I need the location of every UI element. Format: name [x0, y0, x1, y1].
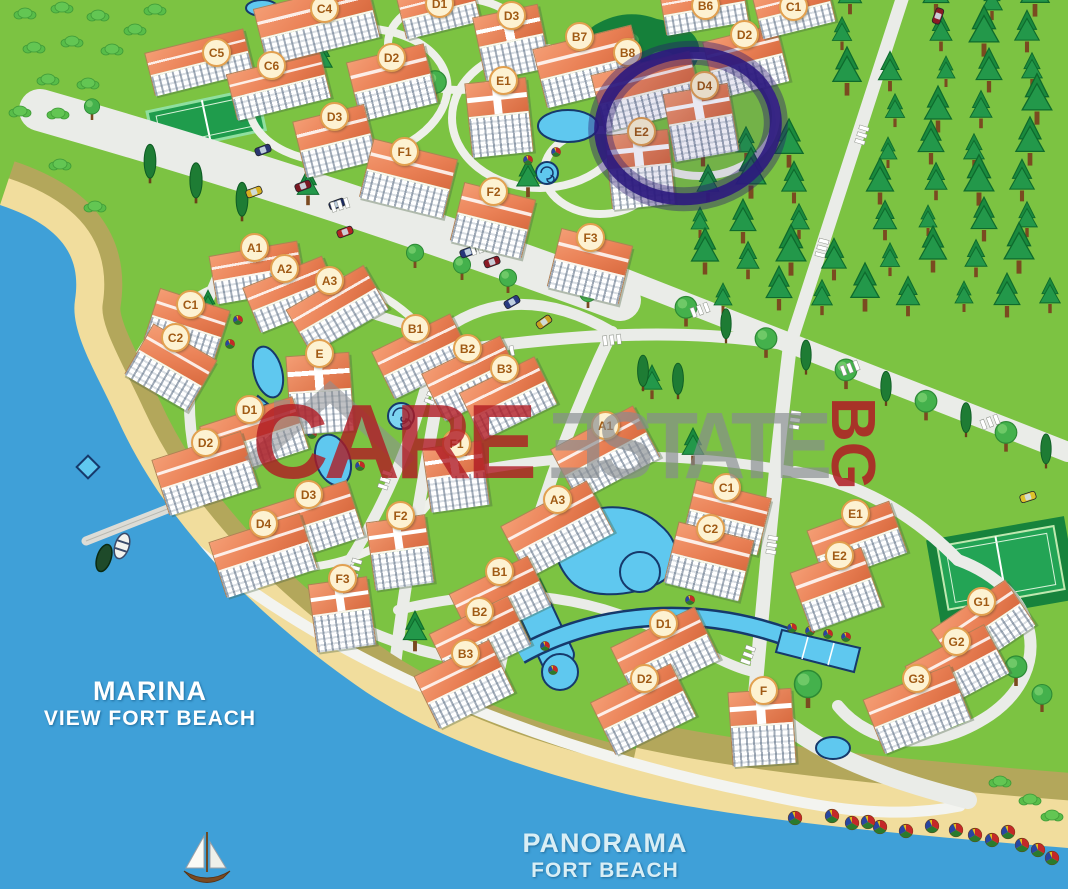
- badge-marina-view-e[interactable]: E: [305, 339, 334, 368]
- badge-panorama-f[interactable]: F: [749, 676, 778, 705]
- badge-upper-resort-d2[interactable]: D2: [377, 43, 406, 72]
- xwalk: [603, 334, 622, 346]
- badge-panorama-b2[interactable]: B2: [465, 597, 494, 626]
- badge-marina-view-f2[interactable]: F2: [386, 501, 415, 530]
- badge-marina-view-a3[interactable]: A3: [315, 266, 344, 295]
- umb: [355, 461, 364, 470]
- umb: [685, 595, 694, 604]
- badge-upper-resort-e2[interactable]: E2: [627, 117, 656, 146]
- umb: [841, 632, 850, 641]
- badge-upper-resort-d2[interactable]: D2: [730, 20, 759, 49]
- umb: [925, 819, 938, 832]
- badge-panorama-a1[interactable]: A1: [591, 411, 620, 440]
- badge-upper-resort-f3[interactable]: F3: [576, 223, 605, 252]
- badge-marina-view-b1[interactable]: B1: [401, 314, 430, 343]
- umb: [551, 147, 560, 156]
- xwalk: [766, 535, 778, 554]
- badge-upper-resort-d3[interactable]: D3: [497, 1, 526, 30]
- umb: [787, 623, 796, 632]
- umb: [1031, 843, 1044, 856]
- badge-upper-resort-b7[interactable]: B7: [565, 22, 594, 51]
- umb: [968, 828, 981, 841]
- badge-marina-view-d3[interactable]: D3: [294, 480, 323, 509]
- badge-marina-view-a2[interactable]: A2: [270, 254, 299, 283]
- badge-upper-resort-f2[interactable]: F2: [479, 177, 508, 206]
- badge-panorama-g3[interactable]: G3: [902, 664, 931, 693]
- umb: [683, 551, 692, 560]
- badge-upper-resort-f1[interactable]: F1: [390, 137, 419, 166]
- badge-upper-resort-c5[interactable]: C5: [202, 38, 231, 67]
- umb: [540, 641, 549, 650]
- umb: [873, 820, 886, 833]
- badge-panorama-d1[interactable]: D1: [649, 609, 678, 638]
- umb: [1001, 825, 1014, 838]
- umb: [523, 155, 532, 164]
- badge-marina-view-b3[interactable]: B3: [490, 354, 519, 383]
- badge-panorama-g1[interactable]: G1: [967, 587, 996, 616]
- badge-panorama-b1[interactable]: B1: [485, 557, 514, 586]
- map-base: [0, 0, 1068, 889]
- xwalk: [789, 410, 801, 429]
- badge-panorama-e2[interactable]: E2: [825, 541, 854, 570]
- badge-panorama-d2[interactable]: D2: [630, 664, 659, 693]
- badge-marina-view-f1[interactable]: F1: [442, 429, 471, 458]
- badge-marina-view-c1[interactable]: C1: [176, 290, 205, 319]
- badge-panorama-c2[interactable]: C2: [696, 514, 725, 543]
- badge-marina-view-c2[interactable]: C2: [161, 323, 190, 352]
- umb: [307, 429, 316, 438]
- badge-upper-resort-e1[interactable]: E1: [489, 66, 518, 95]
- umb: [861, 815, 874, 828]
- umb: [845, 816, 858, 829]
- badge-panorama-g2[interactable]: G2: [942, 627, 971, 656]
- resort-map: C5C6C4D1D2D3D3F1B7B8E1E2D2D4B6C1F2F3A1A2…: [0, 0, 1068, 889]
- umb: [690, 573, 699, 582]
- badge-marina-view-a1[interactable]: A1: [240, 233, 269, 262]
- umb: [788, 811, 801, 824]
- badge-marina-view-d4[interactable]: D4: [249, 509, 278, 538]
- badge-upper-resort-c6[interactable]: C6: [257, 51, 286, 80]
- badge-panorama-c1[interactable]: C1: [712, 473, 741, 502]
- umb: [1015, 838, 1028, 851]
- badge-marina-view-f3[interactable]: F3: [328, 564, 357, 593]
- umb: [949, 823, 962, 836]
- umb: [233, 315, 242, 324]
- umb: [295, 387, 304, 396]
- umb: [985, 833, 998, 846]
- badge-upper-resort-d4[interactable]: D4: [690, 71, 719, 100]
- umb: [679, 617, 688, 626]
- umb: [225, 339, 234, 348]
- umb: [287, 409, 296, 418]
- umb: [805, 626, 814, 635]
- umb: [548, 665, 557, 674]
- badge-marina-view-b2[interactable]: B2: [453, 334, 482, 363]
- umb: [823, 629, 832, 638]
- umb: [899, 824, 912, 837]
- badge-upper-resort-b8[interactable]: B8: [613, 38, 642, 67]
- badge-marina-view-d1[interactable]: D1: [235, 395, 264, 424]
- umb: [1045, 851, 1058, 864]
- badge-panorama-a3[interactable]: A3: [543, 485, 572, 514]
- umb: [825, 809, 838, 822]
- badge-marina-view-d2[interactable]: D2: [191, 428, 220, 457]
- badge-upper-resort-d3[interactable]: D3: [320, 102, 349, 131]
- badge-panorama-e1[interactable]: E1: [841, 499, 870, 528]
- badge-panorama-b3[interactable]: B3: [451, 639, 480, 668]
